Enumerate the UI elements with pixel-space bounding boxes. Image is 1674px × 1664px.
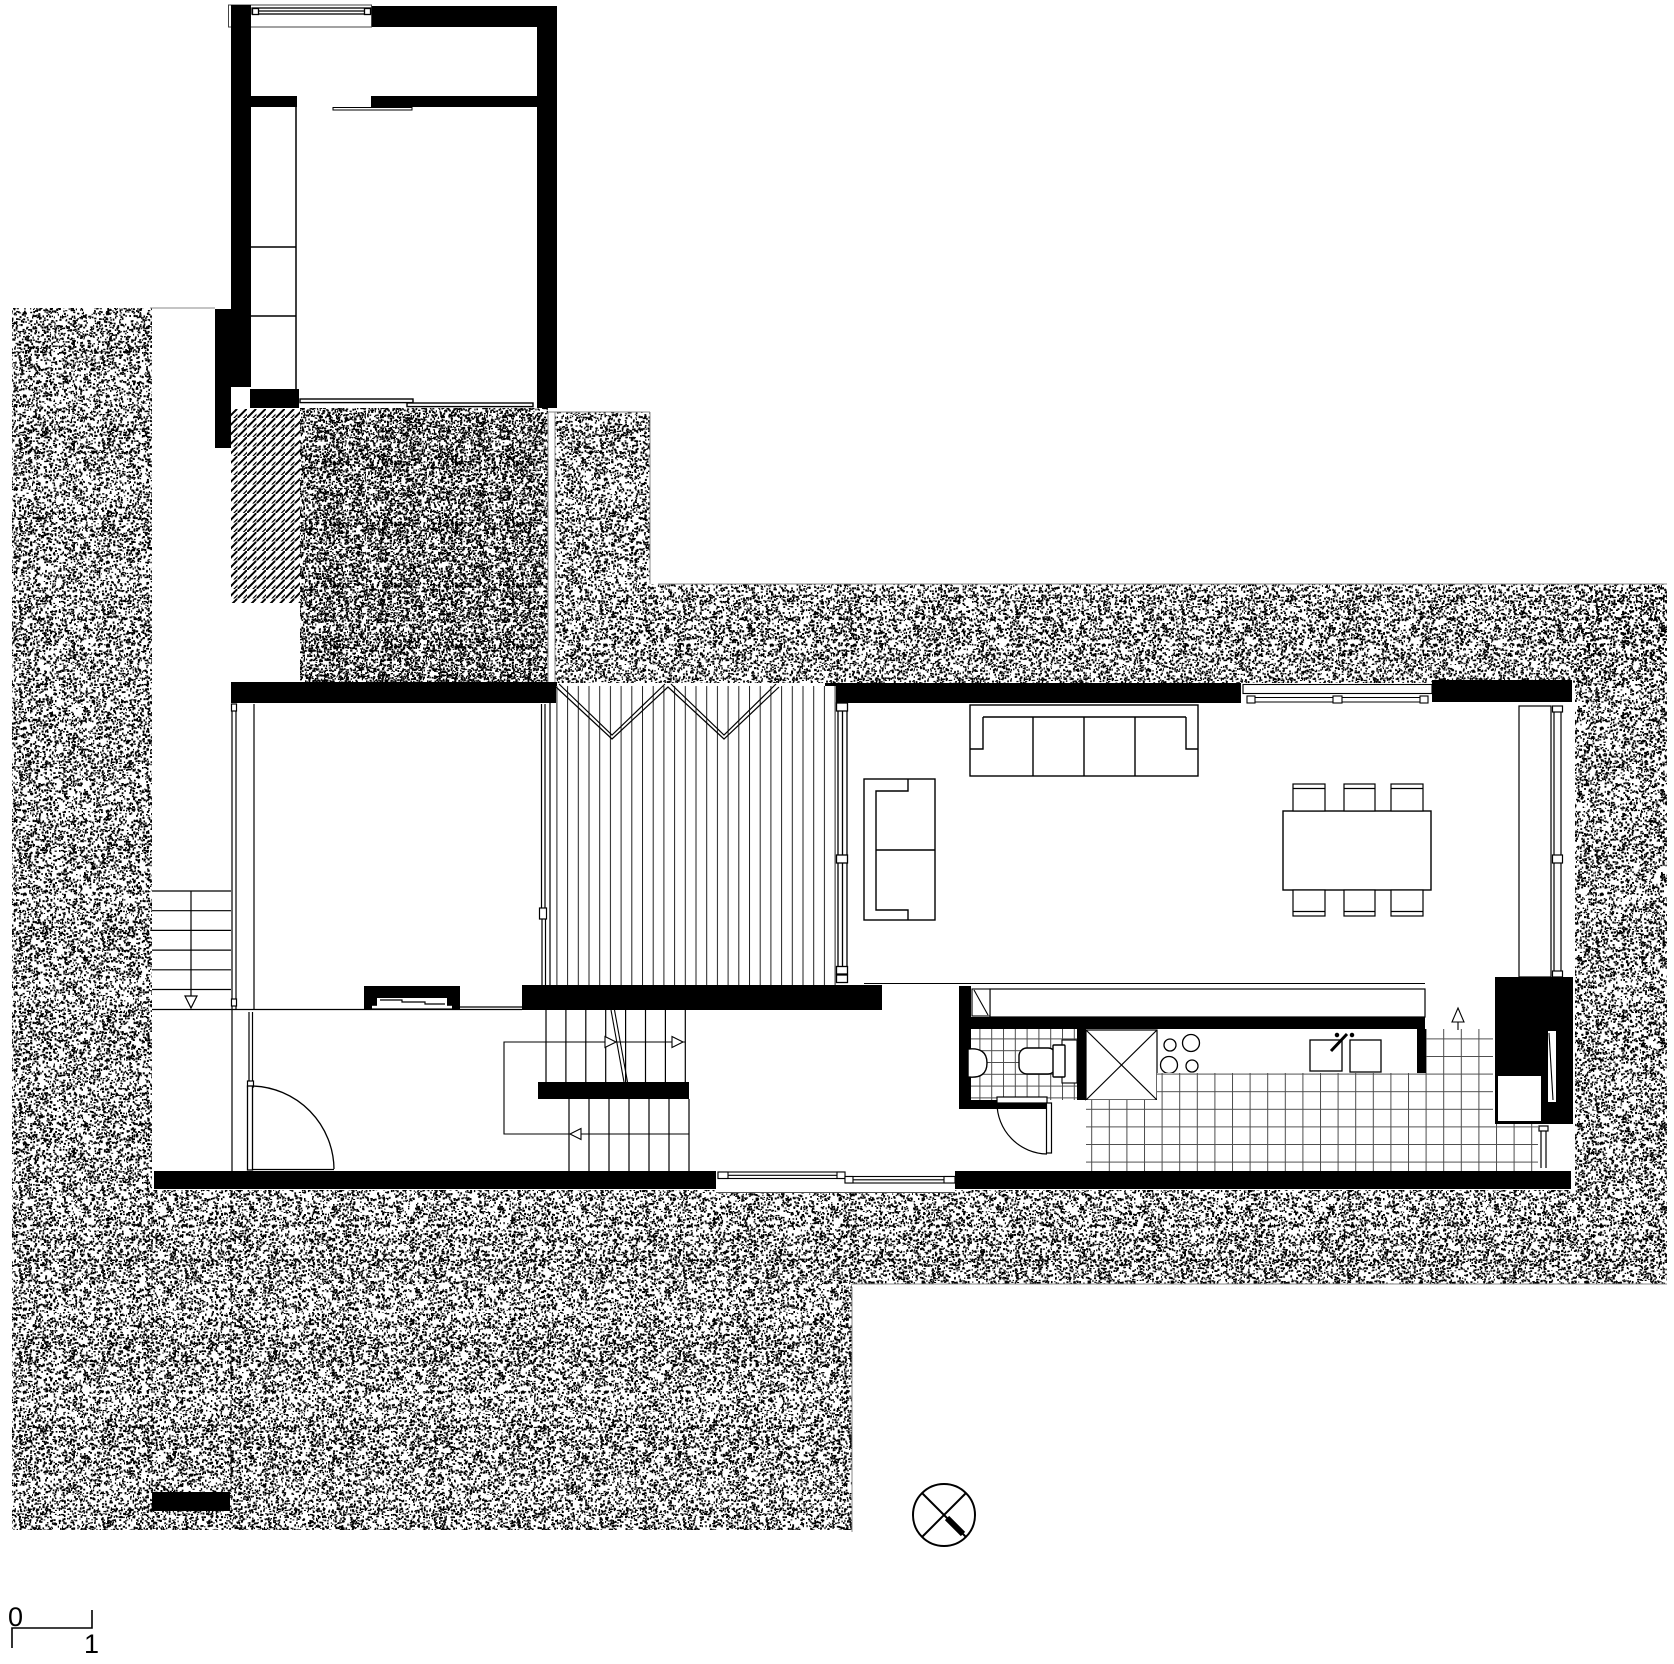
svg-text:0: 0 bbox=[8, 1602, 23, 1632]
svg-text:1: 1 bbox=[84, 1629, 99, 1659]
